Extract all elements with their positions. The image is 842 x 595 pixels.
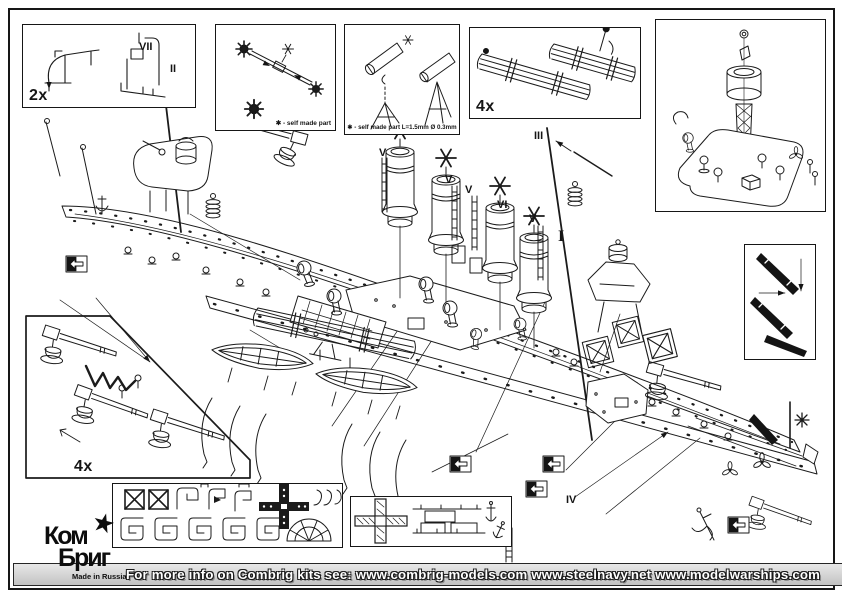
inset-box-platform <box>655 19 826 212</box>
part-label-iii: III <box>534 130 543 142</box>
searchlight-tower-part <box>588 240 650 334</box>
part-label-v-4: V <box>529 213 536 225</box>
inset-box-torpedo-tubes <box>744 244 816 360</box>
photoetch-fret-drawing <box>113 484 342 547</box>
combrig-logo: ★ Ком Бриг Made in Russia <box>38 510 138 586</box>
footer-info-text: For more info on Combrig kits see: www.c… <box>126 567 820 582</box>
yardarm-drawing <box>216 25 335 130</box>
torpedo-tubes-drawing <box>745 245 815 359</box>
logo-line2: Бриг <box>58 544 109 573</box>
part-label-v-1: V <box>379 147 386 159</box>
part-label-i: I <box>558 228 564 246</box>
instruction-sheet: { "footer": { "info_text": "For more inf… <box>0 0 842 595</box>
inset-box-oars: 4x <box>469 27 641 119</box>
platform-assembly-drawing <box>656 20 825 211</box>
caption-self-made-dimensions: ✱ - self made part L=1.5mm Ø 0.3mm <box>347 124 456 131</box>
part-label-vi: VI <box>497 199 507 211</box>
inset-box-searchlights: ✱ - self made part L=1.5mm Ø 0.3mm <box>344 24 460 135</box>
signal-pennant-part <box>86 366 135 390</box>
inset-box-guns <box>26 316 250 478</box>
quantity-label-guns: 4x <box>74 458 93 476</box>
star-icon: ★ <box>89 506 119 542</box>
photoetch-fret-2-drawing <box>351 497 511 546</box>
inset-box-photoetch-fret-2 <box>350 496 512 547</box>
inset-box-photoetch-fret <box>112 483 343 548</box>
part-label-v-3: V <box>465 184 472 196</box>
searchlight-tripods-drawing <box>345 25 459 134</box>
box-vent-part <box>470 258 482 273</box>
quantity-label-oars: 4x <box>476 98 495 116</box>
bow-mast-parts <box>45 119 109 215</box>
caption-self-made-part: ✱ - self made part <box>276 119 331 127</box>
inset-box-yardarm: ✱ - self made part <box>215 24 336 131</box>
logo-tagline: Made in Russia <box>72 572 127 581</box>
part-label-vii: VII <box>139 41 152 53</box>
quantity-label-davits: 2x <box>29 87 48 105</box>
part-label-iv: IV <box>566 494 576 506</box>
oar-bundles-drawing <box>470 28 640 118</box>
bridge-platform-part <box>134 137 213 214</box>
part-label-ii: II <box>170 63 176 75</box>
part-label-v-2: V <box>445 174 452 186</box>
